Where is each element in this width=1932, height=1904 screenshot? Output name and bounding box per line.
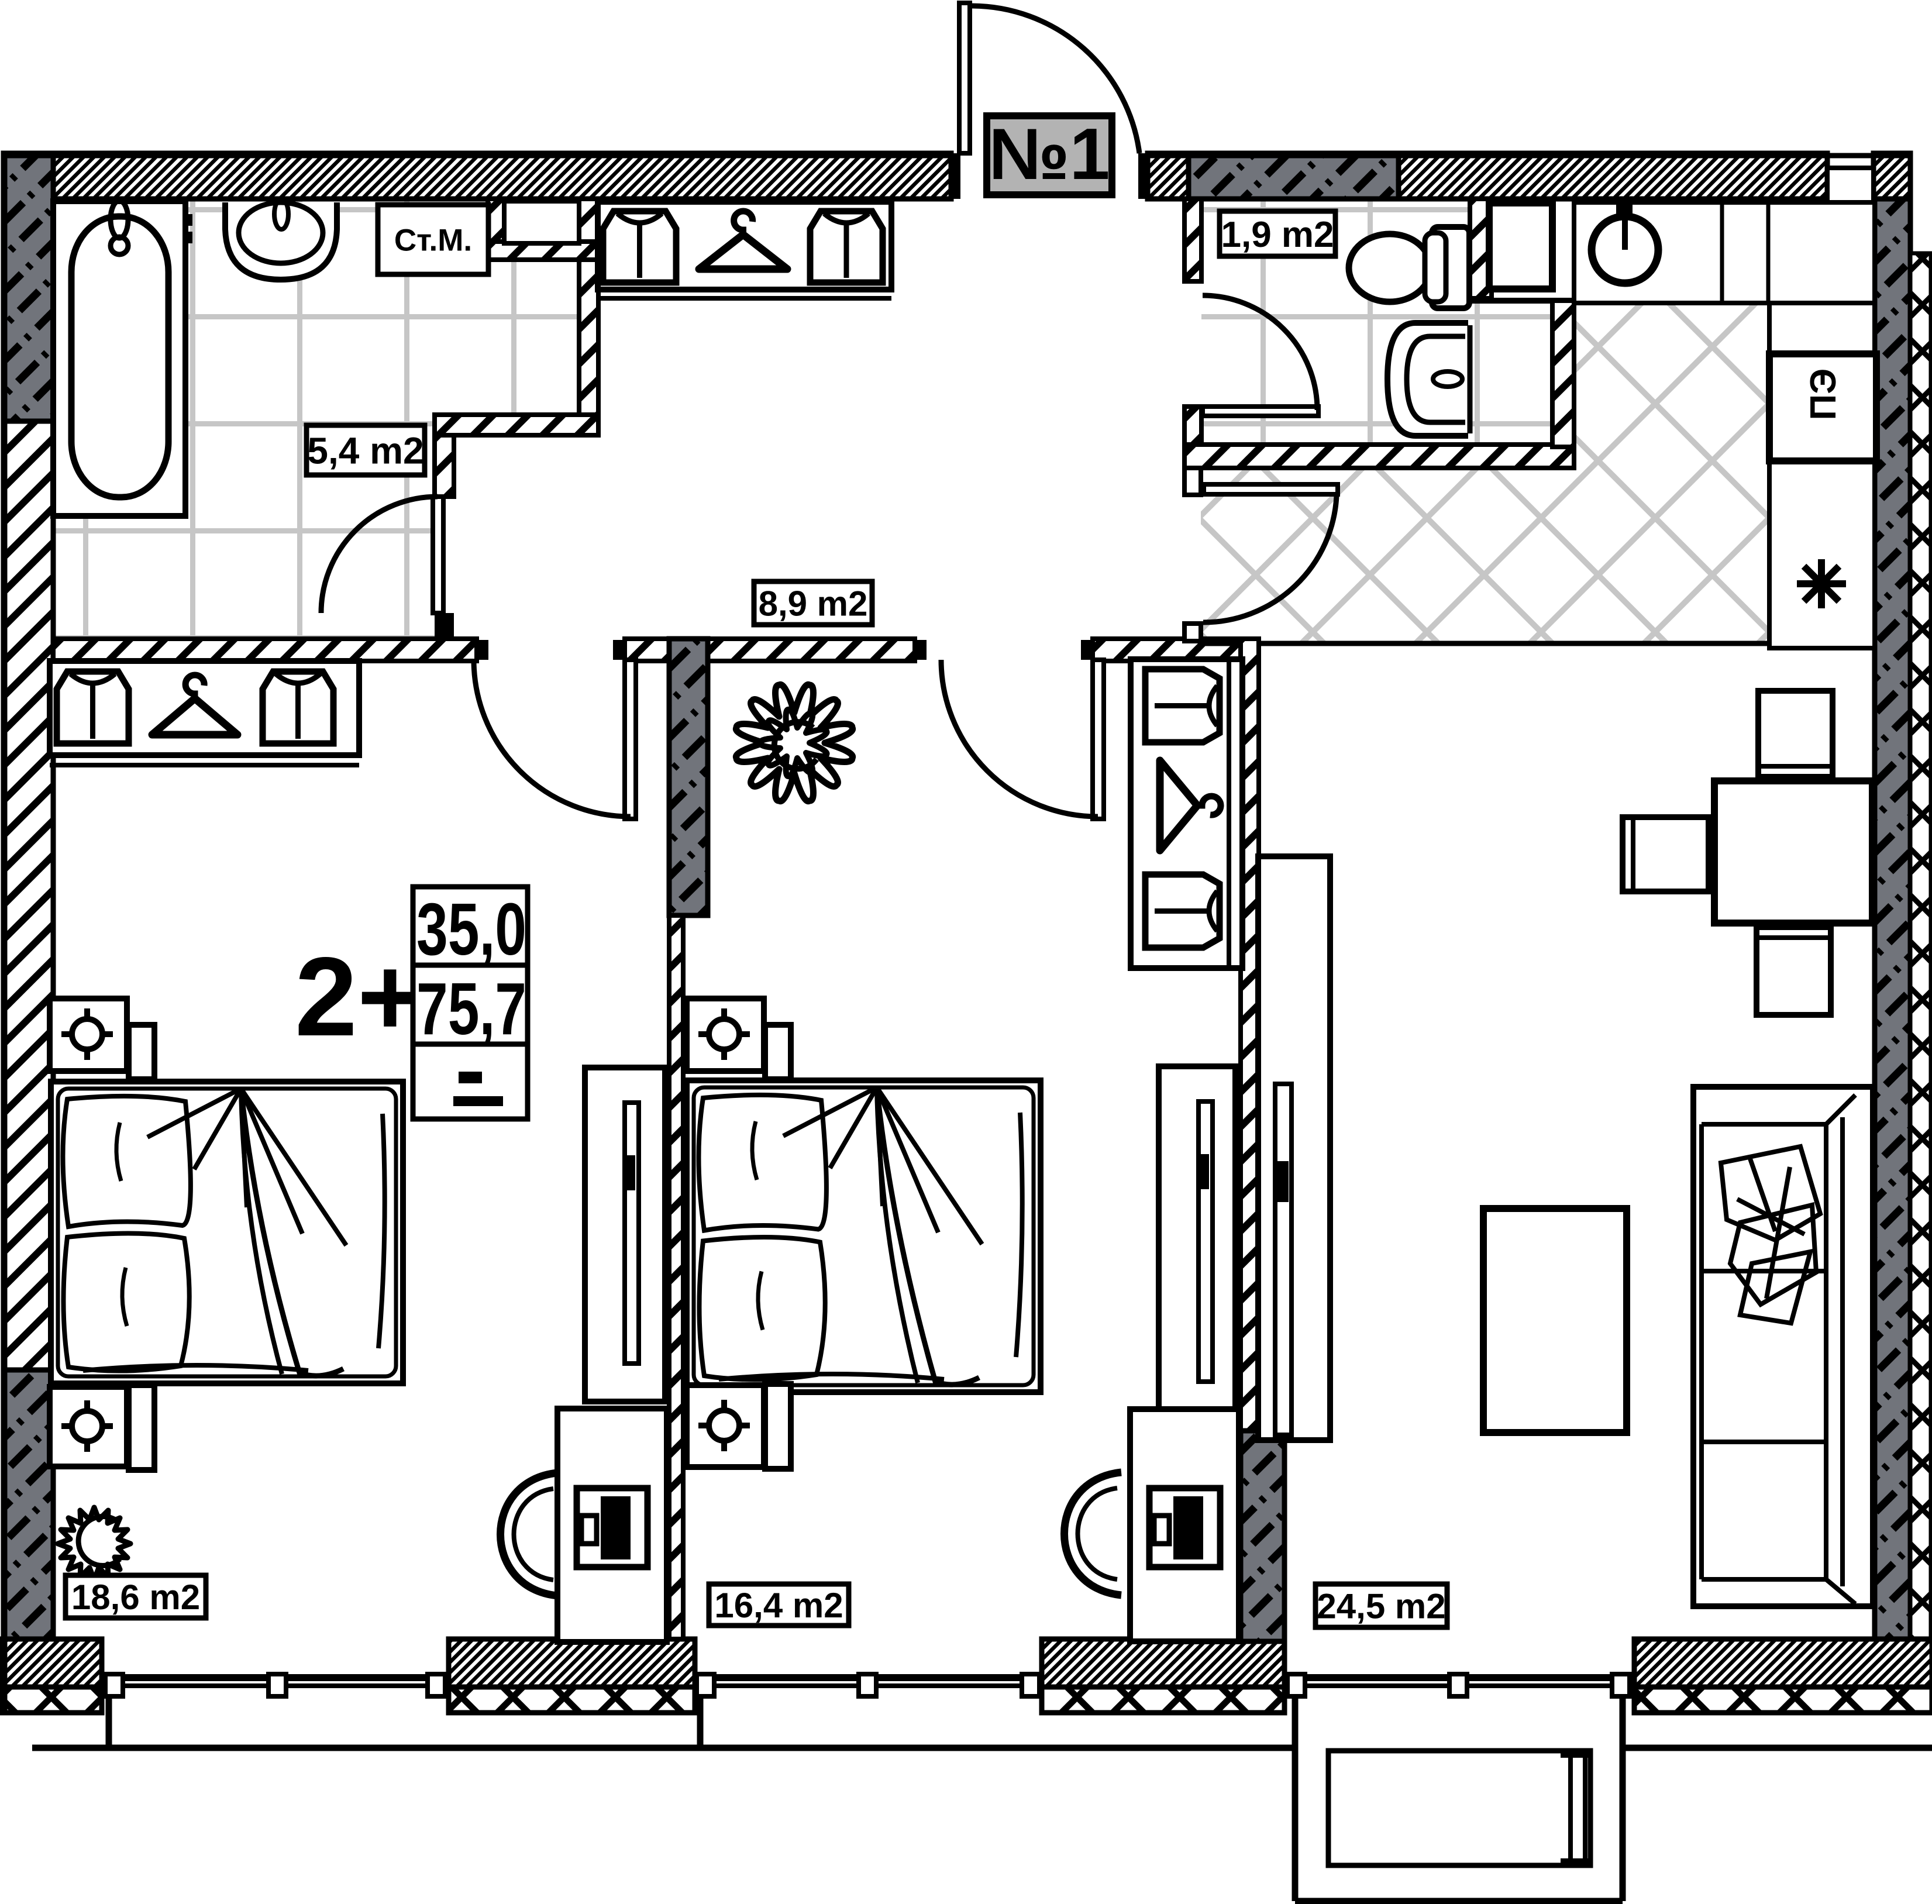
svg-text:5,4 m2: 5,4 m2: [307, 430, 423, 472]
svg-text:Ст.М.: Ст.М.: [394, 223, 472, 258]
svg-text:2+: 2+: [295, 934, 423, 1059]
svg-text:35,0: 35,0: [416, 888, 526, 970]
svg-text:ПЭ: ПЭ: [1803, 369, 1844, 421]
svg-text:8,9 m2: 8,9 m2: [759, 584, 868, 624]
svg-text:№1: №1: [989, 114, 1110, 195]
svg-text:24,5 m2: 24,5 m2: [1317, 1587, 1445, 1626]
svg-text:1,9 m2: 1,9 m2: [1221, 215, 1334, 255]
svg-text:18,6 m2: 18,6 m2: [71, 1578, 200, 1617]
svg-text:16,4 m2: 16,4 m2: [714, 1586, 843, 1625]
svg-text:75,7: 75,7: [416, 968, 526, 1050]
